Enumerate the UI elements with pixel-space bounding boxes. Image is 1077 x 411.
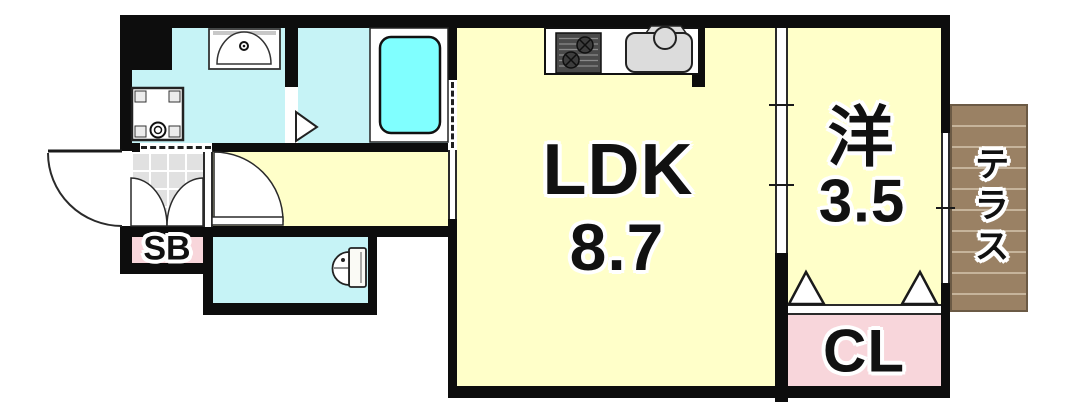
wall-east-lower	[941, 283, 950, 398]
partition-tick	[769, 104, 794, 106]
floor-plan: LDK 8.7 洋 3.5 CL SB テラス	[0, 0, 1077, 411]
wall-east-upper	[941, 15, 950, 133]
terrace-label: テラス	[964, 146, 1015, 269]
wall-washroom-bathroom	[285, 28, 298, 88]
wall-toilet-south	[203, 303, 377, 315]
ldk-room-label: LDK	[543, 129, 694, 211]
closet-door-track	[788, 304, 941, 315]
dashed-opening-line-vertical	[451, 82, 454, 148]
entrance-hall-frame	[203, 150, 213, 227]
sliding-partition	[775, 28, 788, 253]
wall-west-upper	[120, 28, 132, 150]
shoe-box-label: SB	[143, 230, 190, 269]
entrance-tile-floor	[131, 152, 203, 226]
wall-kitchen-stub	[692, 15, 705, 87]
wall-bathroom-ldk	[448, 15, 457, 81]
window-tick	[936, 207, 955, 209]
bathroom-door-gap	[285, 87, 298, 143]
dashed-opening-line-horizontal	[141, 146, 211, 149]
entrance-door-swing-arc	[48, 153, 122, 226]
wall-south	[448, 386, 950, 398]
entrance-opening	[120, 151, 132, 225]
wall-toilet-east	[368, 226, 377, 315]
ldk-area-label: 8.7	[570, 209, 665, 285]
bathroom-floor	[298, 28, 448, 143]
wall-ldk-west-lower	[448, 218, 457, 398]
western-room-area-label: 3.5	[819, 167, 905, 236]
toilet-room-floor	[213, 237, 368, 303]
wall-north	[120, 15, 950, 28]
wall-toilet-west	[203, 226, 213, 315]
hall-ldk-doorway	[448, 149, 457, 219]
partition-tick	[769, 184, 794, 186]
wall-partition-stub	[775, 253, 788, 402]
closet-label: CL	[823, 317, 905, 386]
